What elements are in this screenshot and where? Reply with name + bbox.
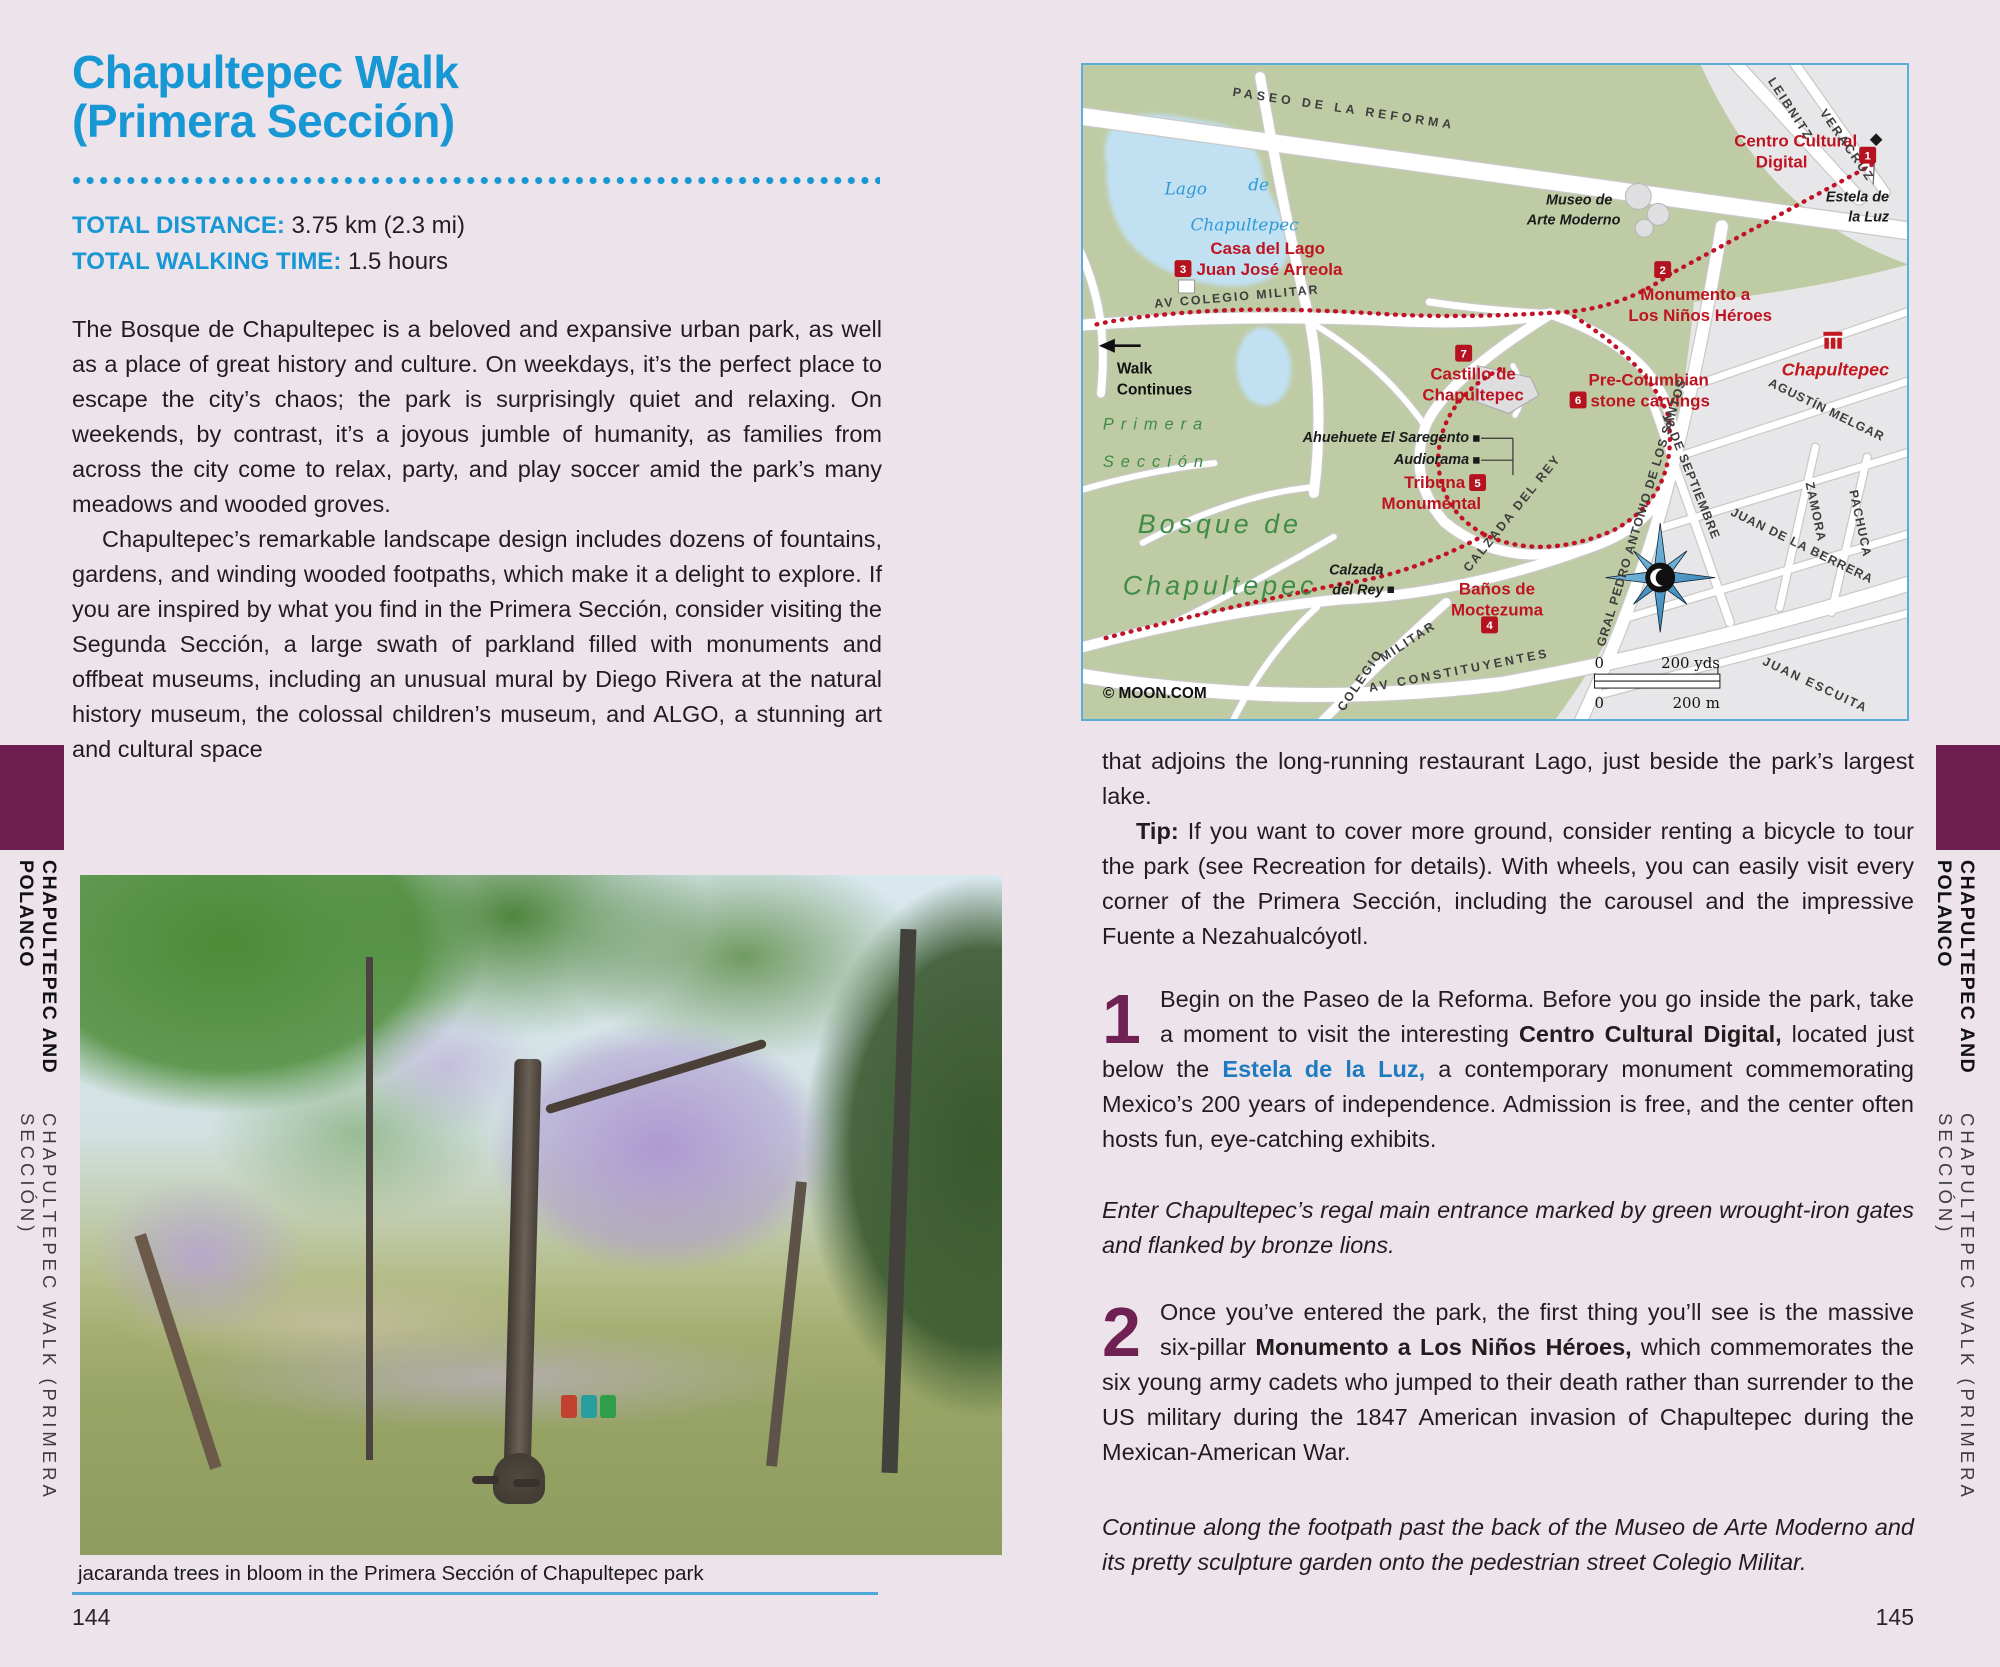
map-label: Museo de [1546,192,1612,208]
photo-caption: jacaranda trees in bloom in the Primera … [78,1562,890,1586]
map-label: Castillo de [1430,365,1515,384]
map-label: Arte Moderno [1526,212,1621,228]
person-lying [513,1479,540,1487]
total-walking-time: TOTAL WALKING TIME: 1.5 hours [72,244,882,280]
walk-directions: that adjoins the long-running restaurant… [1102,744,1914,1580]
dotted-divider [72,176,880,185]
map-label: Monumental [1382,494,1482,513]
step-2-number: 2 [1102,1301,1146,1363]
svg-text:6: 6 [1575,395,1581,407]
map-label: Chapultepec [1422,385,1523,404]
map-label: Digital [1756,153,1808,172]
map-label: 200 m [1673,694,1720,712]
section-title-vertical: CHAPULTEPEC WALK (PRIMERA SECCIÓN) [14,1113,60,1500]
svg-text:5: 5 [1474,478,1481,490]
map-label: stone carvings [1591,391,1710,410]
metro-station-icon [1823,332,1842,349]
caption-rule [72,1592,878,1595]
map-label: Estela de [1826,189,1889,205]
map-label: Casa del Lago [1210,239,1325,258]
poi-monumento-ninos-heroes: Monumento a Los Niños Héroes, [1255,1334,1631,1360]
map-label: Monumento a [1640,285,1750,304]
map-label: Chapultepec [1782,360,1889,380]
map-label: Los Niños Héroes [1628,306,1772,325]
page-number-left: 144 [72,1604,110,1631]
intro-paragraph-1: The Bosque de Chapultepec is a beloved a… [72,312,882,522]
svg-text:4: 4 [1486,620,1493,632]
map-marker-3: 3 [1175,260,1192,277]
poi-estela-de-la-luz-link: Estela de la Luz, [1222,1056,1425,1082]
person-lying [472,1476,499,1484]
map-label: Sección [1103,453,1210,471]
map-label: Pre-Columbian [1589,371,1709,390]
trash-bin-green [600,1395,616,1418]
map-label: Primera [1103,415,1209,433]
tree-trunk-right [766,1181,807,1466]
left-chapter-color-block [0,745,64,850]
map-marker-1: 1 [1859,147,1876,164]
map-marker-5: 5 [1469,474,1486,491]
map-label: del Rey [1332,583,1384,599]
map-label: de [1248,174,1269,194]
continuation-paragraph: that adjoins the long-running restaurant… [1102,744,1914,814]
map-label: Audiorama [1393,452,1469,468]
page-number-right: 145 [1102,1604,1914,1631]
right-chapter-band: CHAPULTEPEC AND POLANCO CHAPULTEPEC WALK… [1932,860,1978,1500]
intro-text: The Bosque de Chapultepec is a beloved a… [72,312,882,767]
map-label: 200 yds [1661,654,1720,672]
map-label: Lago [1164,178,1207,198]
section-title-vertical: CHAPULTEPEC WALK (PRIMERA SECCIÓN) [1932,1113,1978,1500]
walk-stats: TOTAL DISTANCE: 3.75 km (2.3 mi) TOTAL W… [72,208,882,280]
map-label: Chapultepec [1123,571,1318,601]
total-distance: TOTAL DISTANCE: 3.75 km (2.3 mi) [72,208,882,244]
tree-trunk-left [135,1233,222,1470]
map-label: Chapultepec [1190,214,1299,234]
park-photo [80,875,1002,1555]
map-label: Baños de [1459,580,1535,599]
map-label: Moctezuma [1451,600,1544,619]
poi-centro-cultural-digital: Centro Cultural Digital, [1519,1021,1782,1047]
guidebook-spread: CHAPULTEPEC AND POLANCO CHAPULTEPEC WALK… [0,0,2000,1667]
tree-trunk-far-right [882,929,917,1473]
page-title: Chapultepec Walk (Primera Sección) [72,48,882,146]
map-label: Bosque de [1138,509,1302,539]
map-label: Juan José Arreola [1196,260,1343,279]
map-label: Ahuehuete El Saregento [1302,430,1470,446]
svg-text:1: 1 [1865,150,1872,162]
walk-instruction-italic-2: Continue along the footpath past the bac… [1102,1510,1914,1580]
svg-text:7: 7 [1460,348,1466,360]
map-label: Walk [1117,361,1153,378]
map-marker-6: 6 [1570,392,1587,409]
map-label: 0 [1595,694,1604,712]
chapter-title-vertical: CHAPULTEPEC AND POLANCO [14,860,60,1106]
map-marker-7: 7 [1455,345,1472,362]
tree-branch [545,1039,768,1115]
chapter-title-vertical: CHAPULTEPEC AND POLANCO [1932,860,1978,1106]
map-label: la Luz [1848,209,1890,225]
intro-paragraph-2: Chapultepec’s remarkable landscape desig… [72,522,882,767]
map-label: Continues [1117,381,1192,398]
trash-bin-teal [581,1395,597,1418]
tip-paragraph: Tip: If you want to cover more ground, c… [1102,814,1914,954]
tree-trunk [503,1059,541,1481]
svg-text:3: 3 [1180,264,1186,276]
left-chapter-band: CHAPULTEPEC AND POLANCO CHAPULTEPEC WALK… [14,860,60,1500]
walk-instruction-italic-1: Enter Chapultepec’s regal main entrance … [1102,1193,1914,1263]
right-chapter-color-block [1936,745,2000,850]
thin-tree [366,957,373,1460]
map-label: Tribuna [1404,473,1466,492]
trash-bin-red [561,1395,577,1418]
map-label: Calzada [1329,563,1383,579]
map-label: 0 [1595,654,1604,672]
svg-text:2: 2 [1659,265,1665,277]
step-2: 2 Once you’ve entered the park, the firs… [1102,1295,1914,1470]
step-1-number: 1 [1102,988,1146,1050]
step-1: 1 Begin on the Paseo de la Reforma. Befo… [1102,982,1914,1157]
walk-map: PASEO DE LA REFORMALEIBNITZCentro Cultur… [1081,63,1909,721]
map-label: © MOON.COM [1103,685,1207,702]
map-marker-4: 4 [1481,616,1498,633]
casa-del-lago-building [1179,280,1195,293]
map-marker-2: 2 [1654,261,1671,278]
chapultepec-walk-map-svg: PASEO DE LA REFORMALEIBNITZCentro Cultur… [1083,65,1907,719]
